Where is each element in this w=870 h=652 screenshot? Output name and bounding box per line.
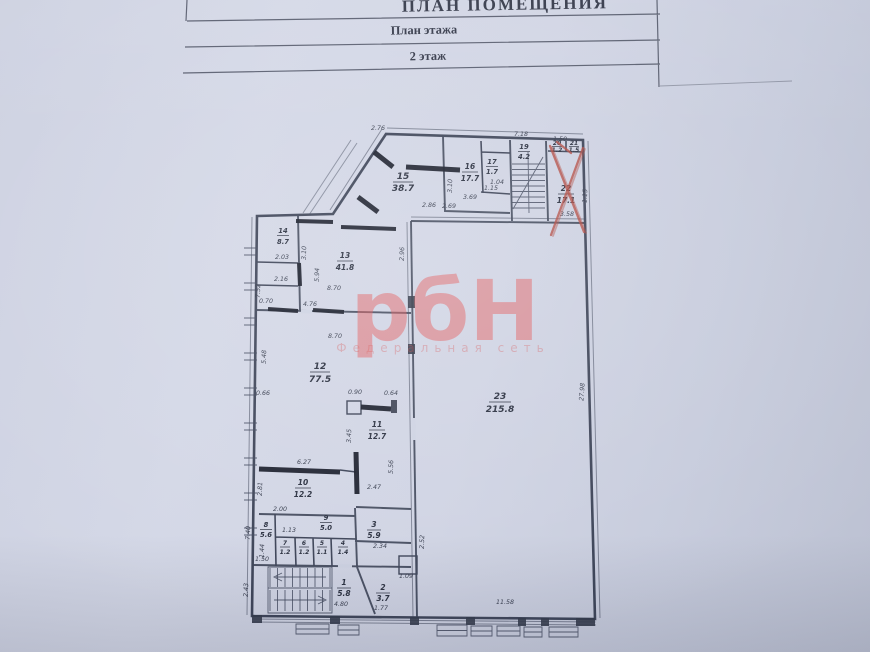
room-number: 7 (283, 540, 288, 547)
dimension-label: 2.81 (257, 482, 264, 496)
room-number: 23 (494, 392, 507, 402)
dimension-label: 27.98 (578, 383, 586, 401)
room-label-16: 1617.7 (461, 162, 480, 183)
room-area: 12.2 (294, 490, 313, 499)
room-label-1: 15.8 (337, 578, 351, 598)
dimension-label: 8.70 (328, 333, 342, 340)
staircase-bottom (268, 567, 332, 613)
room-number: 17 (487, 158, 497, 166)
dimension-label: 2.00 (273, 506, 287, 513)
dimension-label: 2.69 (442, 203, 456, 210)
dimension-label: 4.76 (303, 301, 317, 308)
room-number: 5 (320, 540, 324, 547)
room-number: 2 (380, 583, 385, 592)
room-number: 16 (465, 162, 475, 171)
room-area: 8.7 (277, 238, 289, 246)
photographed-floorplan-page: ПЛАН ПОМЕЩЕНИЯ План этажа 2 этаж (0, 0, 870, 652)
dimension-label: 2.03 (275, 254, 289, 261)
staircase-top (512, 152, 545, 213)
room-area: 1.2 (280, 549, 291, 556)
dimension-label: 2.52 (419, 535, 426, 549)
room-number: 8 (264, 521, 269, 529)
dimension-label: 2.47 (367, 484, 381, 491)
dimension-label: 2.34 (373, 543, 387, 550)
page-subtitle: План этажа (391, 22, 459, 37)
dimension-label: 0.90 (348, 389, 362, 396)
room-label-15: 1538.7 (392, 172, 415, 194)
dimension-label: 1.50 (255, 556, 269, 563)
room-number: 12 (314, 362, 327, 372)
room-area: 1.7 (486, 168, 498, 176)
room-area: 5.6 (260, 531, 272, 539)
room-area: 215.8 (486, 405, 514, 415)
room-area: 1.1 (317, 549, 328, 556)
dimension-label: 2.16 (274, 276, 288, 283)
watermark: рбН Федеральная сеть (336, 262, 549, 360)
dimension-label: 5.48 (261, 350, 268, 364)
room-label-10: 1012.2 (294, 478, 313, 499)
room-area: 5.9 (367, 531, 380, 540)
dimension-label: 3.45 (346, 429, 353, 443)
room-number: 21 (570, 140, 578, 147)
room-number: 6 (302, 540, 306, 547)
room-label-3: 35.9 (367, 520, 381, 540)
room-label-14: 148.7 (277, 227, 289, 246)
room-number: 13 (340, 251, 350, 260)
dimension-label: 11.58 (496, 599, 514, 606)
room-label-6: 61.2 (299, 540, 310, 556)
dimension-label: 0.64 (384, 390, 398, 397)
room-label-17: 171.7 (486, 158, 498, 176)
room-number: 1 (341, 578, 346, 587)
room-label-9: 95.0 (320, 514, 332, 532)
header-table: ПЛАН ПОМЕЩЕНИЯ План этажа 2 этаж (183, 0, 792, 87)
dimension-label: 2.76 (371, 125, 385, 132)
room-label-23: 23215.8 (486, 392, 514, 415)
room-area: 1.4 (338, 549, 349, 556)
room-area: 12.7 (368, 432, 387, 441)
room-number: 14 (278, 227, 288, 235)
dimension-label: 6.27 (297, 459, 311, 466)
dimension-label: 1.15 (582, 189, 589, 203)
room-number: 10 (298, 478, 308, 487)
dimension-label: 4.80 (334, 601, 348, 608)
room-label-11: 1112.7 (368, 420, 387, 441)
room-area: 5.8 (337, 589, 350, 598)
floor-label: 2 этаж (410, 49, 448, 64)
room-labels: 1538.7 1617.7 171.7 194.2 201.2 211.5 22… (260, 140, 579, 603)
room-area: 5.0 (320, 524, 332, 532)
room-number: 9 (324, 514, 329, 522)
dimension-label: 3.10 (447, 179, 454, 193)
dimension-label: 3.69 (463, 194, 477, 201)
room-area: 1.2 (299, 549, 310, 556)
room-area: 4.2 (518, 153, 530, 161)
room-label-8: 85.6 (260, 521, 272, 539)
room-label-12: 1277.5 (309, 362, 331, 385)
floorplan-svg: ПЛАН ПОМЕЩЕНИЯ План этажа 2 этаж (0, 0, 870, 652)
room-number: 3 (371, 520, 376, 529)
room-number: 4 (341, 540, 345, 547)
dimension-label: 7.52 (255, 284, 262, 298)
dimension-label: 5.56 (388, 460, 395, 474)
room-area: 3.7 (376, 594, 390, 603)
page-title: ПЛАН ПОМЕЩЕНИЯ (402, 0, 609, 16)
room-area: 17.7 (461, 174, 480, 183)
dimension-label: 3.10 (301, 246, 308, 260)
room-number: 11 (372, 420, 382, 429)
dimension-label: 1.77 (374, 605, 388, 612)
room-label-4: 41.4 (338, 540, 349, 556)
room-area: 77.5 (309, 375, 331, 385)
dimension-label: 8.70 (327, 285, 341, 292)
dimension-label: 2.43 (243, 583, 250, 597)
room-label-7: 71.2 (280, 540, 291, 556)
dimension-label: 1.09 (399, 573, 413, 580)
dimension-label: 0.66 (256, 390, 270, 397)
dimension-label: 0.70 (259, 298, 273, 305)
dimension-label: 2.86 (422, 202, 436, 209)
dimension-label: 1.13 (282, 527, 296, 534)
dimension-label: 7.40 (245, 526, 252, 540)
dimension-label: 7.18 (514, 131, 528, 138)
room-number: 19 (519, 143, 529, 151)
watermark-tagline: Федеральная сеть (336, 341, 549, 355)
dimension-label: 1.15 (484, 185, 498, 192)
dimension-label: 5.94 (314, 268, 321, 282)
room-label-2: 23.7 (376, 583, 390, 603)
room-label-5: 51.1 (317, 540, 328, 556)
dimension-label: 1.50 (553, 136, 567, 143)
dimension-label: 2.96 (399, 247, 406, 261)
room-area: 38.7 (392, 184, 415, 194)
room-number: 15 (397, 172, 410, 182)
